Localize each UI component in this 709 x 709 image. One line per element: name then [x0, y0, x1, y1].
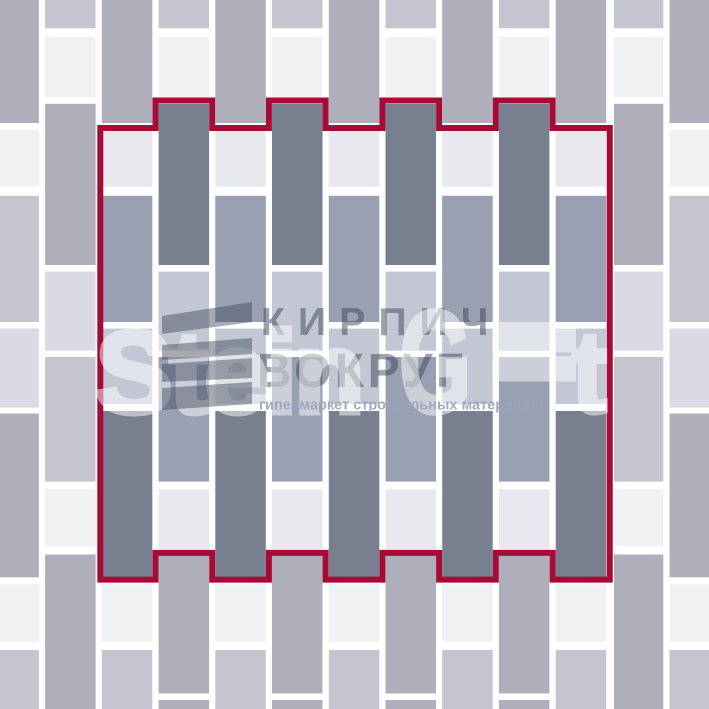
- svg-text:t: t: [572, 308, 607, 437]
- svg-text:гипермаркет строительных матер: гипермаркет строительных материалов: [259, 398, 548, 414]
- svg-text:G: G: [399, 281, 471, 443]
